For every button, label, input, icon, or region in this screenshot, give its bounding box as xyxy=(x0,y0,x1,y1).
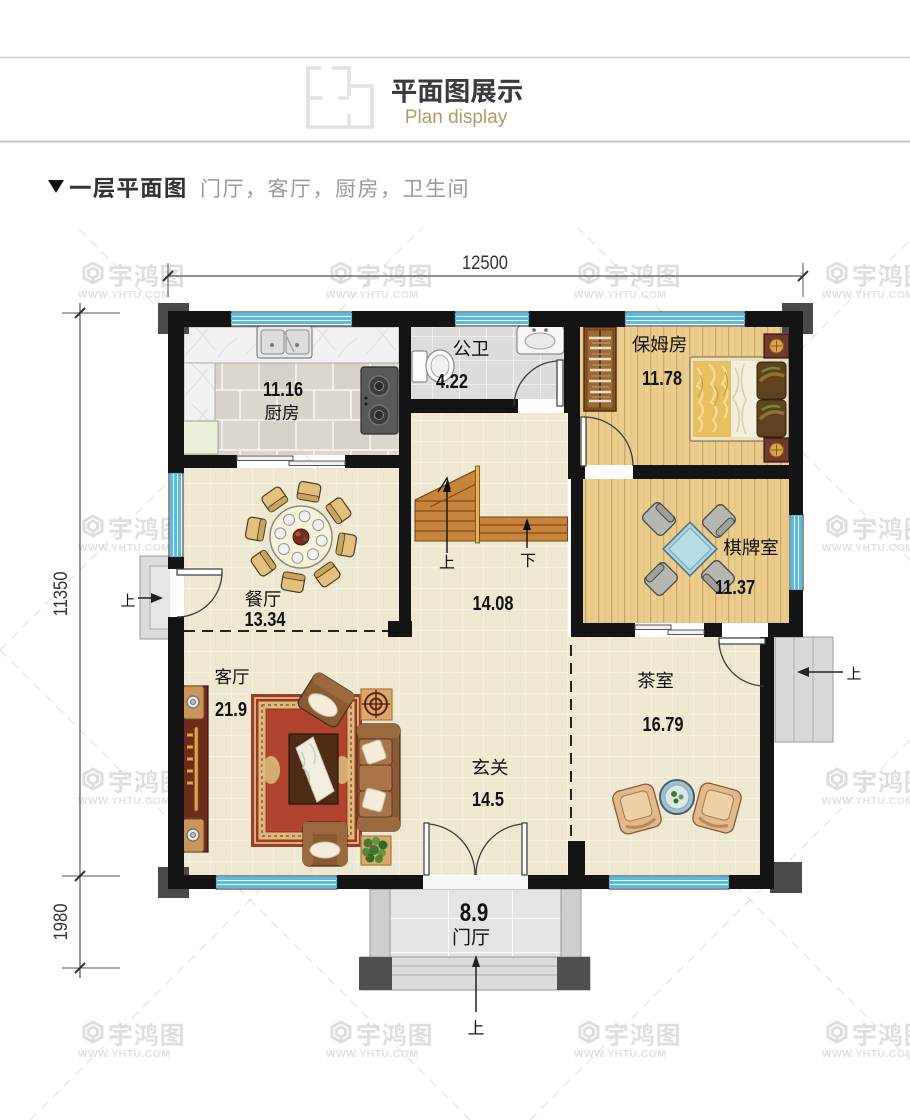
svg-text:13.34: 13.34 xyxy=(245,607,287,630)
svg-text:11.37: 11.37 xyxy=(715,575,755,598)
svg-text:16.79: 16.79 xyxy=(643,712,684,735)
svg-text:14.5: 14.5 xyxy=(472,787,504,810)
svg-text:11.78: 11.78 xyxy=(642,366,682,389)
svg-text:21.9: 21.9 xyxy=(215,697,247,720)
svg-text:4.22: 4.22 xyxy=(436,369,468,392)
svg-text:12500: 12500 xyxy=(462,252,508,274)
svg-text:14.08: 14.08 xyxy=(473,591,514,614)
svg-text:8.9: 8.9 xyxy=(460,898,488,926)
svg-text:Plan display: Plan display xyxy=(405,107,508,128)
svg-text:11350: 11350 xyxy=(50,572,72,617)
svg-text:1980: 1980 xyxy=(50,904,72,941)
svg-text:11.16: 11.16 xyxy=(263,377,303,400)
